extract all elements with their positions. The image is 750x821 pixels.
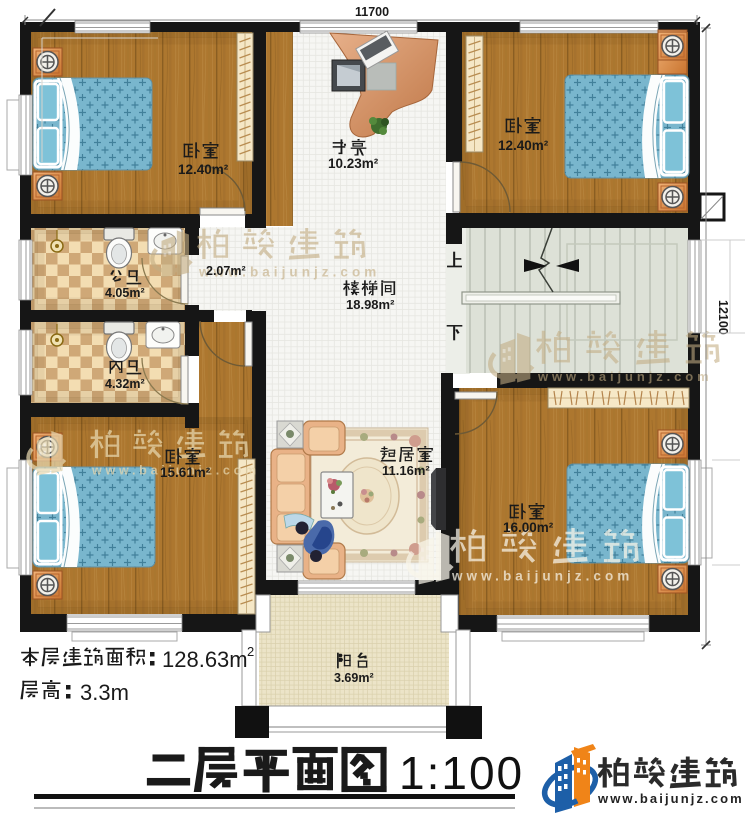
- svg-text:2: 2: [247, 644, 254, 659]
- svg-text:10.23m²: 10.23m²: [328, 156, 379, 171]
- svg-text:1:100: 1:100: [399, 747, 524, 799]
- svg-text:4.05m²: 4.05m²: [105, 286, 145, 300]
- svg-text:16.00m²: 16.00m²: [503, 520, 554, 535]
- svg-text:12100: 12100: [716, 300, 730, 335]
- svg-text:2.07m²: 2.07m²: [206, 264, 246, 278]
- svg-text:3.69m²: 3.69m²: [334, 671, 374, 685]
- svg-text:www.baijunjz.com: www.baijunjz.com: [597, 791, 744, 806]
- svg-text:15.61m²: 15.61m²: [160, 465, 211, 480]
- svg-text:11.16m²: 11.16m²: [382, 463, 430, 478]
- svg-text:128.63m: 128.63m: [162, 647, 248, 672]
- svg-text:18.98m²: 18.98m²: [346, 297, 395, 312]
- svg-text:www.baijunjz.com: www.baijunjz.com: [537, 369, 713, 384]
- svg-text:4.32m²: 4.32m²: [105, 377, 145, 391]
- svg-text:12.40m²: 12.40m²: [178, 162, 229, 177]
- svg-text:12.40m²: 12.40m²: [498, 138, 549, 153]
- svg-text:www.baijunjz.com: www.baijunjz.com: [451, 569, 633, 584]
- svg-text:3.3m: 3.3m: [80, 680, 129, 705]
- svg-text:11700: 11700: [355, 5, 389, 19]
